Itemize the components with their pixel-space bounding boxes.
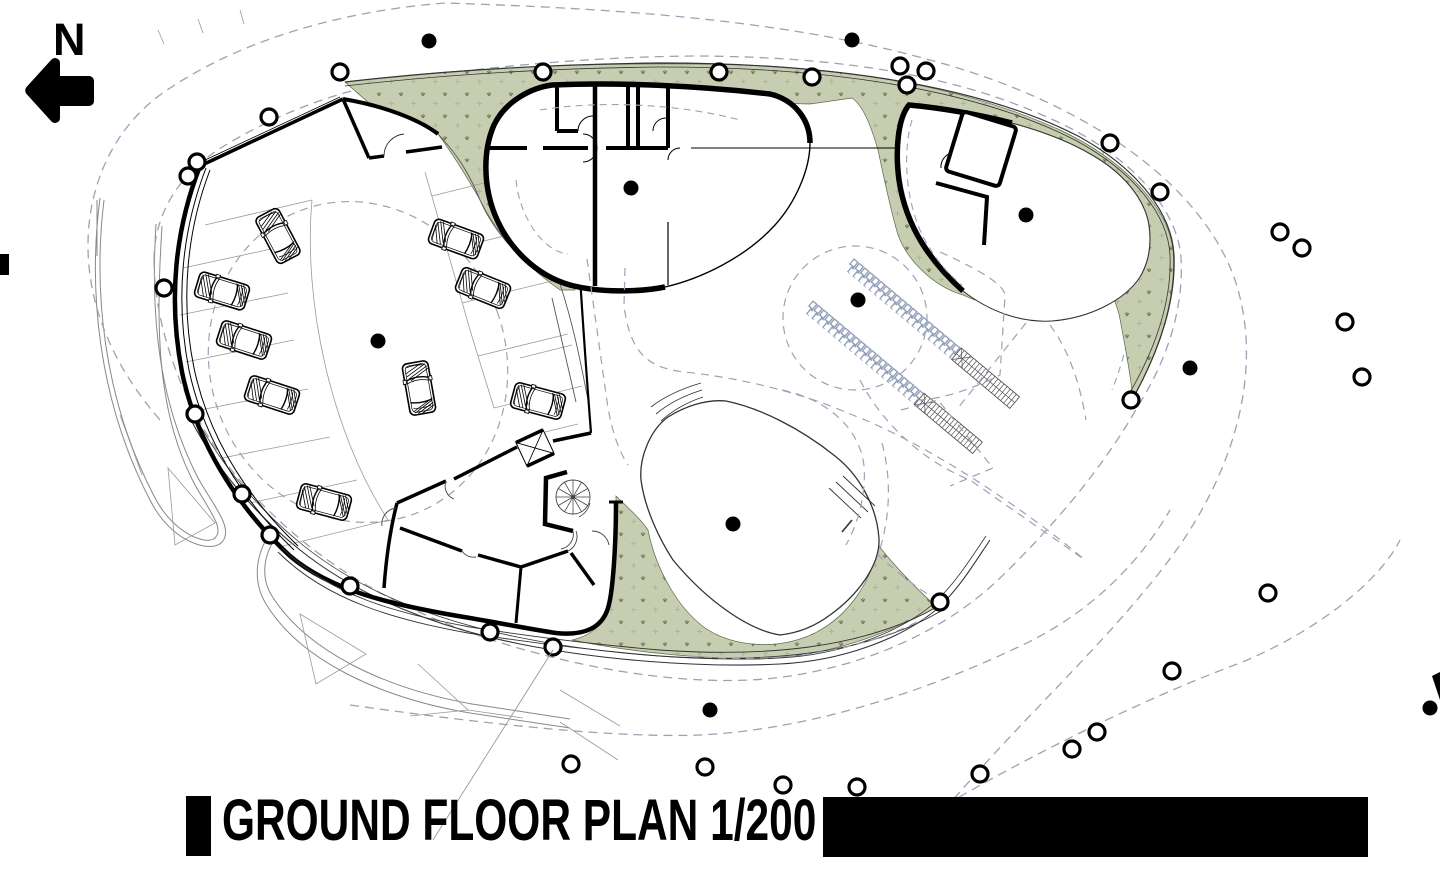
svg-text:GROUND FLOOR PLAN 1/200: GROUND FLOOR PLAN 1/200 (222, 788, 816, 853)
svg-text:N: N (53, 14, 86, 65)
